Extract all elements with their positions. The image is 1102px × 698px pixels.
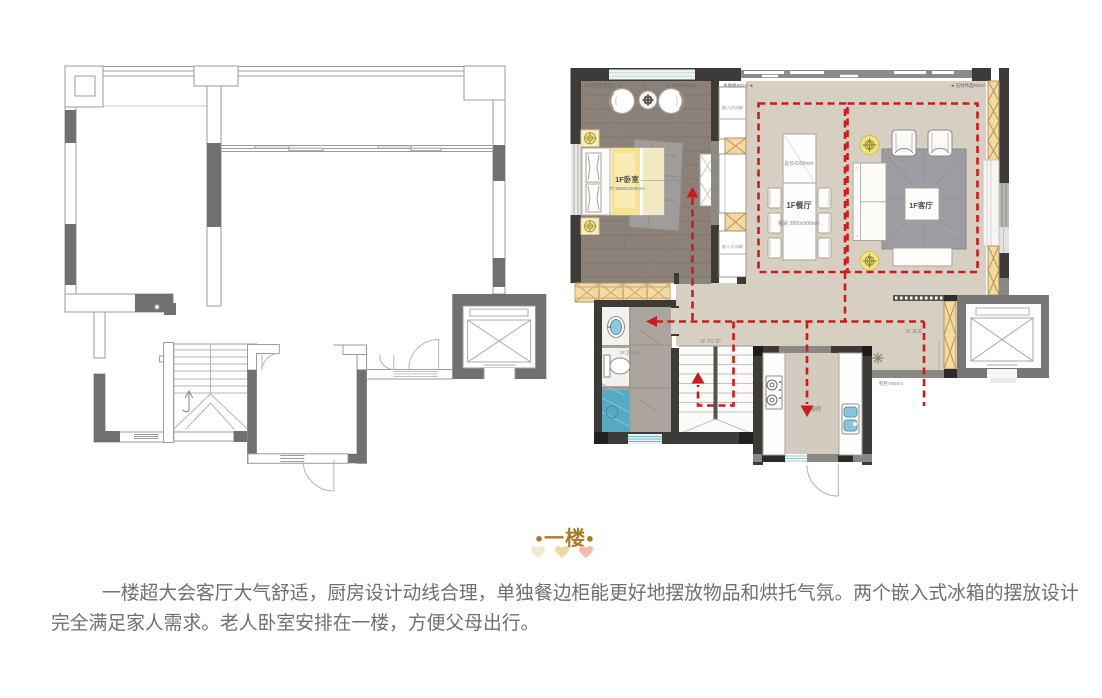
svg-text:餐桌 2800x900mm: 餐桌 2800x900mm	[778, 220, 820, 227]
svg-text:1F客厅: 1F客厅	[909, 200, 933, 210]
svg-text:木地板R02①◄: 木地板R02①◄	[723, 82, 753, 89]
svg-text:嵌入式冰箱: 嵌入式冰箱	[722, 243, 743, 250]
svg-text:1F餐厅: 1F餐厅	[786, 200, 811, 210]
svg-text:◄ 石材饰面R05①: ◄ 石材饰面R05①	[950, 82, 987, 89]
svg-text:嵌入式冰箱: 嵌入式冰箱	[722, 104, 743, 111]
svg-text:鞋柜750mm: 鞋柜750mm	[879, 380, 903, 387]
svg-text:约 3800x3200mm: 约 3800x3200mm	[609, 185, 645, 192]
svg-text:1F卧室: 1F卧室	[615, 174, 639, 184]
svg-text:1F TO 2F: 1F TO 2F	[700, 339, 721, 345]
svg-text:1F 玄关: 1F 玄关	[905, 328, 922, 335]
svg-text:总长4300mm: 总长4300mm	[784, 160, 813, 167]
svg-text:C2白色乳胶漆①◄: C2白色乳胶漆①◄	[584, 82, 621, 89]
svg-text:1F卫生间: 1F卫生间	[620, 349, 639, 356]
